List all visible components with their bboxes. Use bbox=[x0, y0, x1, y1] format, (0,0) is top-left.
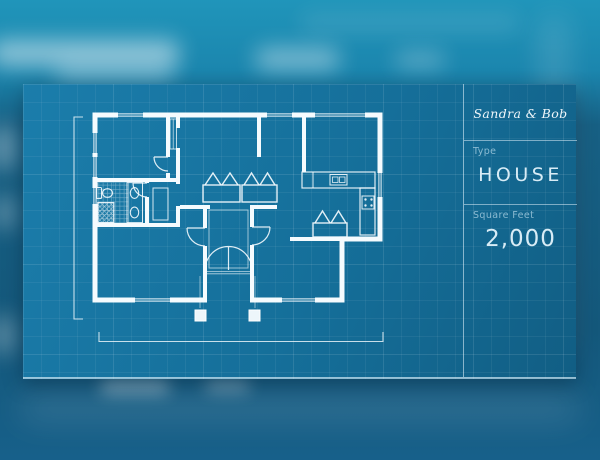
bathroom-fixtures bbox=[97, 183, 143, 223]
owners-name: Sandra & Bob bbox=[464, 106, 577, 121]
background-blur-blob-left-1 bbox=[0, 125, 16, 170]
background-blur-band-top-left bbox=[0, 40, 180, 66]
closets bbox=[153, 119, 177, 220]
blueprint-panel: Sandra & Bob Type HOUSE Square Feet 2,00… bbox=[23, 84, 576, 379]
divider-line bbox=[464, 140, 577, 141]
type-value: HOUSE bbox=[464, 164, 577, 186]
entry-doors bbox=[205, 247, 252, 274]
type-label: Type bbox=[473, 146, 496, 157]
entry-bay-walls bbox=[205, 270, 252, 300]
blueprint-poster: { "info_panel": { "owners_name": "Sandra… bbox=[0, 0, 600, 460]
background-blur-blob-bottom-1 bbox=[100, 378, 170, 394]
background-blur-blob-left-3 bbox=[0, 315, 16, 355]
background-blur-blob-left-2 bbox=[0, 195, 16, 230]
background-blur-blob-top-right bbox=[395, 52, 445, 68]
square-feet-value: 2,000 bbox=[464, 226, 577, 252]
background-blur-blob-top-mid bbox=[255, 48, 340, 70]
background-blur-band-top-left-2 bbox=[55, 62, 175, 82]
square-feet-label: Square Feet bbox=[473, 210, 534, 221]
info-panel: Sandra & Bob Type HOUSE Square Feet 2,00… bbox=[463, 84, 577, 377]
divider-line bbox=[464, 204, 577, 205]
background-blur-faint-top bbox=[300, 14, 520, 32]
dimension-lines bbox=[74, 117, 383, 342]
background-blur-band-bottom bbox=[20, 395, 580, 421]
background-blur-blob-bottom-2 bbox=[205, 378, 250, 392]
